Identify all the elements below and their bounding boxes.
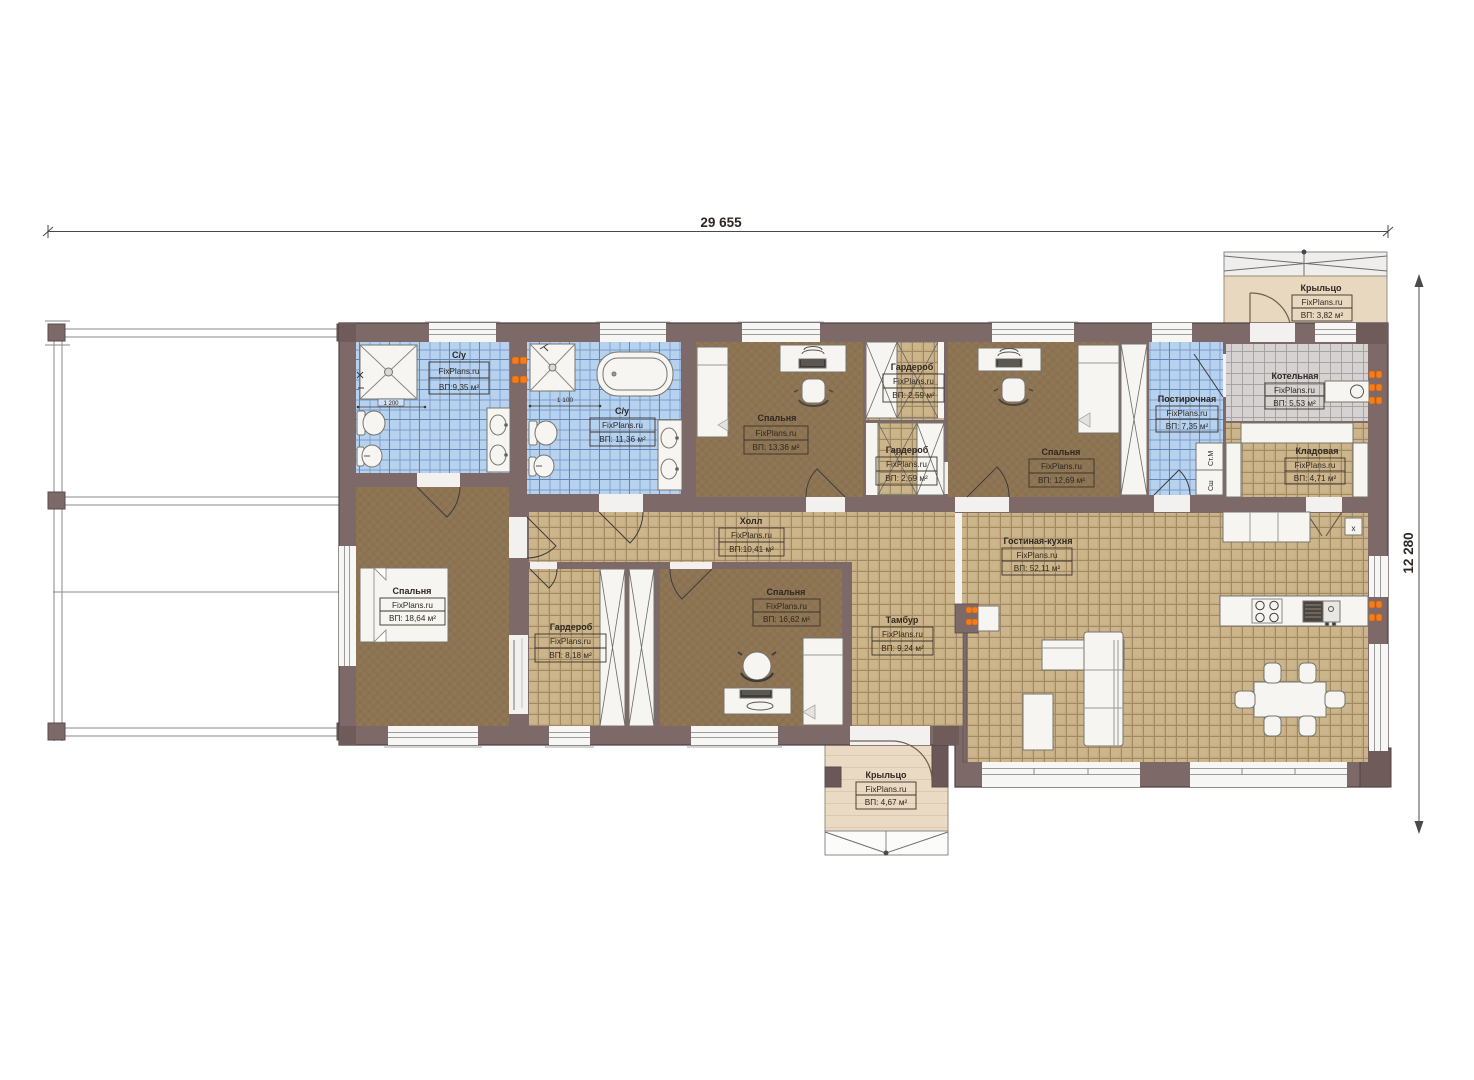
svg-text:FixPlans.ru: FixPlans.ru: [1041, 462, 1082, 471]
svg-text:ВП: 12,69 м²: ВП: 12,69 м²: [1038, 476, 1085, 485]
svg-text:ВП: 2,59 м²: ВП: 2,59 м²: [892, 391, 935, 400]
svg-text:ВП: 8,18 м²: ВП: 8,18 м²: [549, 651, 592, 660]
svg-text:Гардероб: Гардероб: [886, 445, 929, 455]
svg-text:ВП: 7,35 м²: ВП: 7,35 м²: [1166, 422, 1209, 431]
svg-text:ВП:9,35 м²: ВП:9,35 м²: [439, 383, 479, 392]
svg-text:FixPlans.ru: FixPlans.ru: [550, 637, 591, 646]
svg-text:Тамбур: Тамбур: [886, 615, 919, 625]
svg-text:Сш: Сш: [1208, 480, 1215, 491]
svg-text:Крыльцо: Крыльцо: [866, 770, 907, 780]
svg-text:FixPlans.ru: FixPlans.ru: [1302, 298, 1343, 307]
svg-text:Спальня: Спальня: [1042, 447, 1081, 457]
svg-text:ВП: 5,53 м²: ВП: 5,53 м²: [1273, 399, 1316, 408]
svg-text:FixPlans.ru: FixPlans.ru: [1274, 386, 1315, 395]
svg-text:Спальня: Спальня: [393, 586, 432, 596]
svg-text:FixPlans.ru: FixPlans.ru: [886, 460, 927, 469]
svg-text:FixPlans.ru: FixPlans.ru: [731, 531, 772, 540]
svg-text:Постирочная: Постирочная: [1158, 394, 1216, 404]
svg-text:FixPlans.ru: FixPlans.ru: [439, 367, 480, 376]
svg-text:ВП: 13,36 м²: ВП: 13,36 м²: [752, 443, 799, 452]
svg-text:Ст.М: Ст.М: [1208, 451, 1215, 466]
svg-text:Крыльцо: Крыльцо: [1301, 283, 1342, 293]
svg-text:Котельная: Котельная: [1271, 371, 1318, 381]
svg-text:Холл: Холл: [740, 516, 763, 526]
svg-text:29 655: 29 655: [700, 215, 742, 230]
svg-text:ВП: 11,36 м²: ВП: 11,36 м²: [599, 435, 646, 444]
svg-text:ВП: 18,64 м²: ВП: 18,64 м²: [389, 614, 436, 623]
svg-text:FixPlans.ru: FixPlans.ru: [882, 630, 923, 639]
svg-text:FixPlans.ru: FixPlans.ru: [1167, 409, 1208, 418]
svg-text:Спальня: Спальня: [758, 413, 797, 423]
svg-text:FixPlans.ru: FixPlans.ru: [756, 429, 797, 438]
svg-text:Гардероб: Гардероб: [891, 362, 934, 372]
svg-text:FixPlans.ru: FixPlans.ru: [766, 602, 807, 611]
svg-text:FixPlans.ru: FixPlans.ru: [866, 785, 907, 794]
svg-text:ВП:10,41 м²: ВП:10,41 м²: [729, 545, 774, 554]
svg-text:ВП: 52,11 м²: ВП: 52,11 м²: [1014, 564, 1061, 573]
svg-text:x: x: [1352, 524, 1356, 533]
svg-text:1 100: 1 100: [557, 397, 574, 404]
svg-text:ВП: 9,24 м²: ВП: 9,24 м²: [881, 644, 924, 653]
svg-text:ВП: 4,71 м²: ВП: 4,71 м²: [1294, 474, 1337, 483]
svg-text:FixPlans.ru: FixPlans.ru: [1295, 461, 1336, 470]
svg-text:Гардероб: Гардероб: [550, 622, 593, 632]
svg-text:ВП: 3,82 м²: ВП: 3,82 м²: [1301, 311, 1344, 320]
svg-text:Кладовая: Кладовая: [1295, 446, 1338, 456]
svg-text:Гостиная-кухня: Гостиная-кухня: [1004, 536, 1073, 546]
svg-text:12 280: 12 280: [1401, 532, 1416, 573]
svg-text:ВП: 2,59 м²: ВП: 2,59 м²: [885, 474, 928, 483]
svg-text:С/у: С/у: [615, 406, 629, 416]
svg-text:1 200: 1 200: [383, 401, 399, 407]
svg-text:FixPlans.ru: FixPlans.ru: [602, 421, 643, 430]
svg-text:FixPlans.ru: FixPlans.ru: [392, 601, 433, 610]
svg-text:Спальня: Спальня: [767, 587, 806, 597]
svg-text:С/у: С/у: [452, 350, 466, 360]
svg-text:ВП: 4,67 м²: ВП: 4,67 м²: [865, 798, 908, 807]
svg-text:ВП: 16,62 м²: ВП: 16,62 м²: [763, 615, 810, 624]
svg-text:FixPlans.ru: FixPlans.ru: [893, 377, 934, 386]
svg-text:FixPlans.ru: FixPlans.ru: [1017, 551, 1058, 560]
